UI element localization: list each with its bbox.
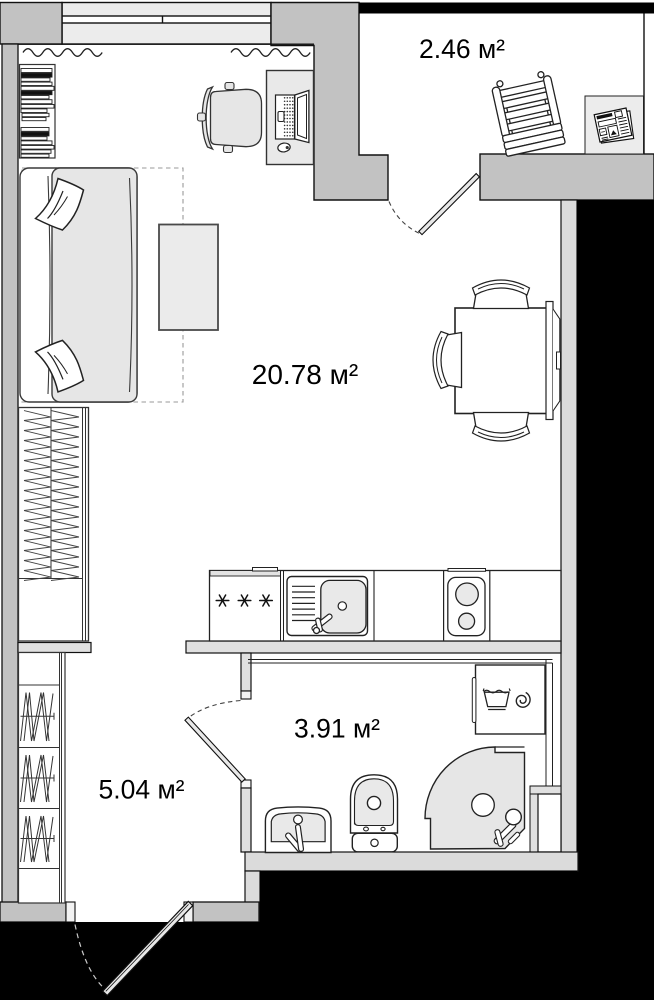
svg-text:5.04 м²: 5.04 м²	[99, 775, 185, 805]
svg-text:20.78 м²: 20.78 м²	[252, 359, 358, 390]
svg-text:2.46 м²: 2.46 м²	[419, 34, 505, 64]
svg-text:3.91 м²: 3.91 м²	[294, 714, 380, 744]
